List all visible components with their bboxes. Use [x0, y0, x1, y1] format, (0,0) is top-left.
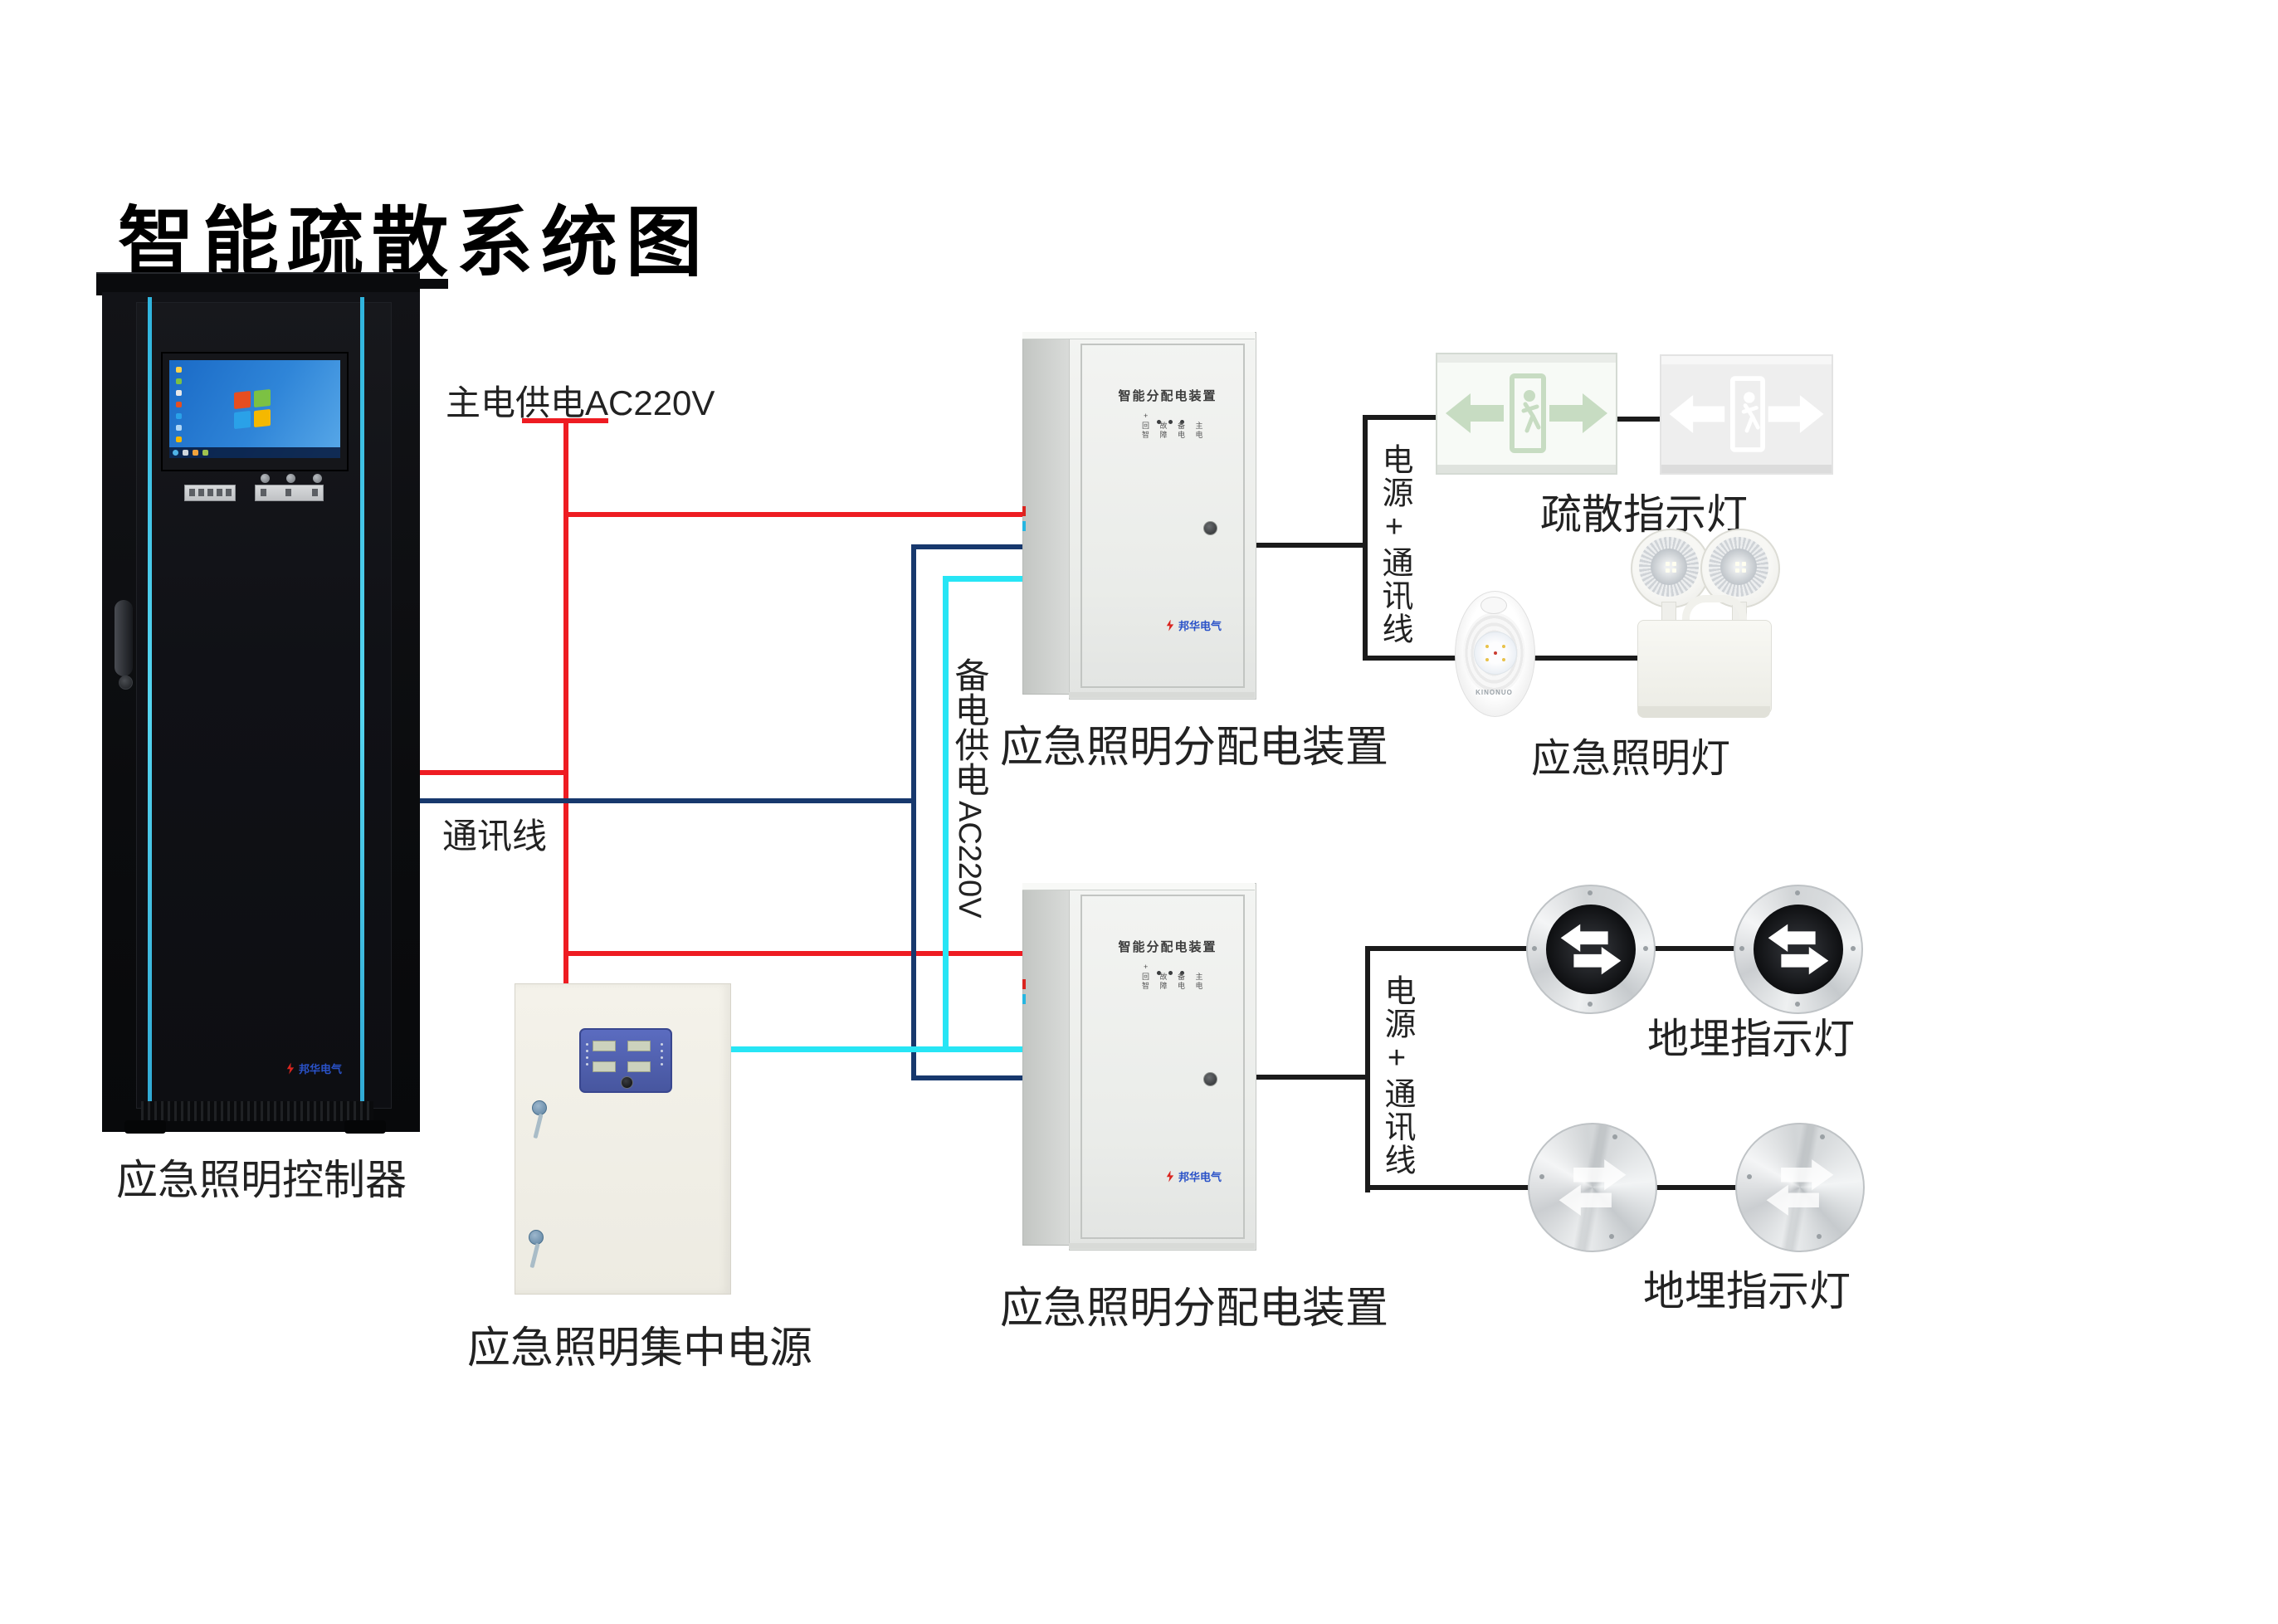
main-power-wire-to-box1 [567, 512, 1022, 517]
box1-side-sticker-red [1022, 506, 1026, 516]
box2-indicator-row1: 回 故 备 主 [1142, 973, 1207, 982]
box1-indicator-row1: 回 故 备 主 [1142, 422, 1207, 431]
distribution-box-1: 智能分配电装置 + 回 故 备 主 智 障 电 电 邦华电气 [1022, 332, 1255, 698]
twin-light-body [1637, 620, 1772, 714]
box1-brand-logo: 邦华电气 [1165, 617, 1222, 633]
twin-head-emergency-light [1631, 529, 1780, 721]
wire-ground-row1-between [1652, 946, 1735, 951]
main-power-wire-to-box2 [567, 951, 1022, 956]
exit-pictogram [1661, 356, 1832, 473]
emergency-lights-label: 应急照明灯 [1531, 725, 1730, 783]
desktop-icon [176, 390, 182, 396]
ground-light-row2-left [1528, 1123, 1657, 1252]
branch1-vertical [1363, 415, 1368, 661]
rack-foot-left [124, 1120, 166, 1134]
box2-output-wire [1253, 1075, 1370, 1080]
taskbar [169, 447, 340, 458]
twin-light-led-dots [1735, 562, 1739, 566]
twin-light-base [1637, 706, 1770, 718]
rack-knob-2 [286, 474, 295, 483]
branch2-wire-to-ground-row2 [1368, 1185, 1530, 1190]
taskbar-icon [183, 450, 188, 456]
taskbar-start-icon [173, 450, 178, 456]
box1-indicator-plus-icon: + [1144, 412, 1148, 420]
power-comm-label-2: 电源+通讯线 [1378, 974, 1415, 1177]
box2-bottom-strip [1069, 1243, 1255, 1249]
ground-lights-row1-label: 地埋指示灯 [1647, 1006, 1855, 1066]
ground-light-arrows [1754, 905, 1843, 994]
rack-brand-logo: 邦华电气 [285, 1061, 342, 1076]
branch1-wire-to-exit-sign [1366, 415, 1439, 420]
exit-sign-1 [1436, 353, 1617, 475]
comm-wire-from-rack [412, 798, 916, 803]
rack-monitor [161, 352, 349, 471]
backup-power-wire-to-box1 [947, 576, 1022, 582]
rack-label: 应急照明控制器 [116, 1147, 407, 1207]
wire-oval-light-to-twin-light [1532, 656, 1638, 661]
branch2-wire-to-ground-row1 [1368, 946, 1528, 951]
desktop-icon [176, 425, 182, 431]
desktop-icon [176, 367, 182, 373]
comm-wire-to-box2 [915, 1075, 1022, 1080]
box1-indicator-text: 回 故 备 主 智 障 电 电 [1142, 422, 1207, 440]
box2-side-sticker-cyan [1022, 994, 1026, 1004]
wire-ground-row2-between [1654, 1185, 1737, 1190]
desktop-icon [176, 378, 182, 384]
taskbar-icon [202, 450, 208, 456]
power-comm-label-1: 电源+通讯线 [1376, 443, 1412, 646]
ground-light-embossed-arrows [1750, 1138, 1850, 1237]
controller-rack: 邦华电气 [96, 272, 448, 1135]
brand-bolt-icon [1165, 1171, 1175, 1183]
brand-bolt-icon [285, 1063, 295, 1075]
windows-logo-yellow-tile [254, 409, 271, 427]
exit-sign-2 [1660, 354, 1833, 475]
box2-indicator-plus-icon: + [1144, 963, 1148, 971]
cabinet-panel-knob [621, 1076, 633, 1089]
desktop-icon [176, 436, 182, 442]
box1-top-cap [1022, 332, 1255, 339]
oval-emergency-light: KINONUO [1455, 591, 1534, 715]
backup-power-wire-cabinet-to-box2 [729, 1046, 1022, 1052]
monitor-screen [169, 360, 340, 458]
box2-brand-logo: 邦华电气 [1165, 1168, 1222, 1184]
ground-light-row1-left [1526, 885, 1656, 1014]
box1-bottom-strip [1069, 692, 1255, 698]
branch2-vertical [1365, 946, 1370, 1192]
rack-button-panel-left [184, 485, 236, 501]
power-cabinet [515, 983, 731, 1295]
desktop-icon [176, 413, 182, 419]
box1-indicator-row2: 智 障 电 电 [1142, 431, 1207, 440]
branch1-wire-to-emergency-light [1366, 656, 1460, 661]
oval-light-brand: KINONUO [1455, 689, 1534, 696]
cabinet-key-lower [529, 1243, 539, 1268]
box2-indicator-row2: 智 障 电 电 [1142, 982, 1207, 991]
windows-logo-blue-tile [234, 411, 251, 429]
comm-line-label: 通讯线 [442, 808, 547, 859]
rack-accent-strip-right [360, 297, 364, 1112]
cabinet-control-panel [579, 1028, 672, 1093]
exit-pictogram [1437, 354, 1616, 473]
ground-light-embossed-arrows [1543, 1138, 1642, 1237]
box1-output-wire [1255, 543, 1366, 548]
windows-logo-green-tile [254, 389, 271, 407]
rack-button-panel-right [255, 485, 324, 501]
rack-accent-strip-left [148, 297, 152, 1112]
comm-wire-to-box1 [915, 544, 1022, 549]
power-cabinet-label: 应急照明集中电源 [467, 1313, 812, 1375]
box1-door-title: 智能分配电装置 [1099, 387, 1237, 404]
box1-brand-text: 邦华电气 [1178, 617, 1222, 633]
ground-light-row2-right [1735, 1123, 1865, 1252]
box2-label: 应急照明分配电装置 [1000, 1273, 1388, 1335]
twin-light-inner-lens [1651, 549, 1687, 585]
led-display [593, 1041, 616, 1051]
backup-power-label: 备电供电 AC220V [950, 657, 988, 923]
backup-power-label-cn: 备电供电 [950, 657, 988, 797]
rack-door-handle [115, 600, 133, 676]
rack-knob-3 [313, 474, 322, 483]
twin-light-inner-lens [1720, 549, 1757, 585]
box1-side-panel [1022, 337, 1072, 695]
box1-keyhole [1203, 521, 1217, 535]
led-display [627, 1041, 651, 1051]
oval-light-button [1480, 597, 1507, 614]
box1-side-sticker-cyan [1022, 521, 1026, 531]
windows-logo-red-tile [234, 391, 251, 409]
box2-top-cap [1022, 883, 1255, 890]
box2-brand-text: 邦华电气 [1178, 1168, 1222, 1184]
box2-keyhole [1203, 1072, 1217, 1086]
twin-light-led-dots [1666, 562, 1670, 566]
box2-door-title: 智能分配电装置 [1099, 938, 1237, 955]
taskbar-icon [193, 450, 198, 456]
ground-lights-row2-label: 地埋指示灯 [1643, 1258, 1851, 1318]
desktop-icon [176, 402, 182, 407]
rack-door-lock [119, 675, 133, 690]
backup-power-vertical-wire [943, 576, 949, 1052]
led-display [627, 1061, 651, 1072]
brand-bolt-icon [1165, 620, 1175, 632]
ground-light-arrows [1546, 905, 1636, 994]
rack-foot-right [344, 1120, 386, 1134]
ground-light-row1-right [1734, 885, 1863, 1014]
rack-knob-1 [261, 474, 270, 483]
box2-side-sticker-red [1022, 979, 1026, 989]
box2-indicator-text: 回 故 备 主 智 障 电 电 [1142, 973, 1207, 991]
main-power-label: 主电供电AC220V [446, 375, 715, 426]
rack-vent-grille [141, 1101, 373, 1121]
led-display [593, 1061, 616, 1072]
box2-side-panel [1022, 888, 1072, 1246]
diagram-canvas: 智能疏散系统图 主电供电AC220V 通讯线 备电供电 AC220V 电源+通讯… [0, 0, 2278, 1624]
rack-brand-text: 邦华电气 [299, 1061, 342, 1076]
box1-label: 应急照明分配电装置 [1000, 712, 1388, 774]
backup-power-label-ac: AC220V [950, 801, 988, 919]
wire-exit-sign1-to-sign2 [1614, 417, 1661, 422]
cabinet-key-upper [533, 1114, 543, 1139]
distribution-box-2: 智能分配电装置 + 回 故 备 主 智 障 电 电 邦华电气 [1022, 883, 1255, 1249]
rack-top-cap-lip [418, 279, 448, 289]
oval-light-led-disc [1474, 632, 1517, 675]
main-power-vertical-wire [563, 422, 568, 985]
comm-vertical-wire [911, 544, 916, 1080]
